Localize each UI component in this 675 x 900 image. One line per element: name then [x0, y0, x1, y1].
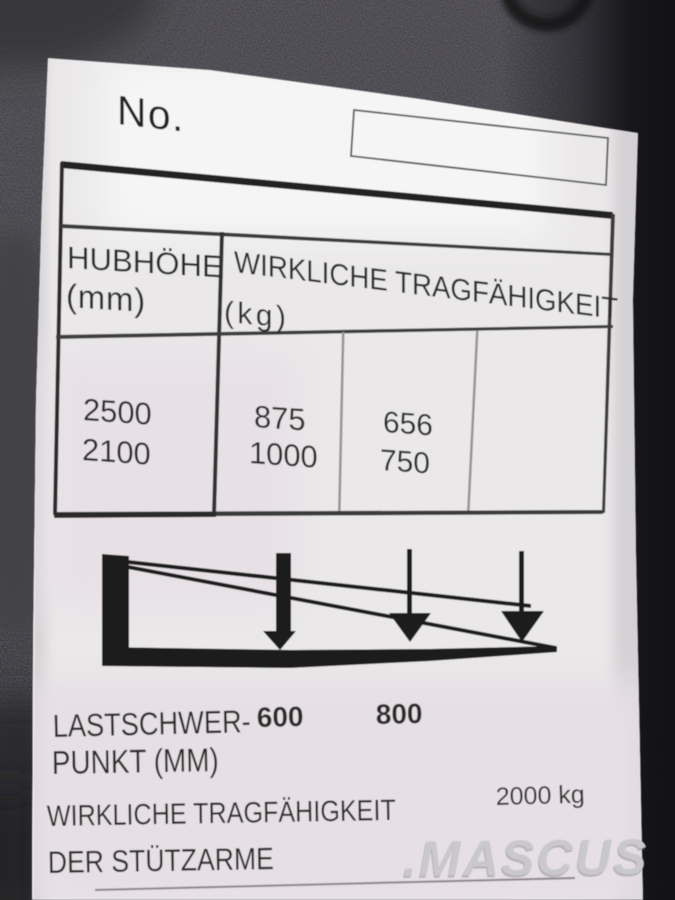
- svg-text:2500: 2500: [83, 392, 152, 432]
- svg-text:800: 800: [375, 698, 422, 730]
- svg-text:656: 656: [383, 406, 433, 443]
- svg-text:LASTSCHWER-: LASTSCHWER-: [52, 703, 251, 744]
- svg-text:1000: 1000: [249, 435, 318, 475]
- svg-text:(mm): (mm): [66, 277, 146, 319]
- svg-text:No.: No.: [117, 87, 185, 141]
- svg-text:2000 kg: 2000 kg: [495, 781, 585, 811]
- svg-text:.MASCUS: .MASCUS: [403, 829, 649, 887]
- svg-text:2100: 2100: [82, 432, 151, 472]
- svg-text:600: 600: [256, 701, 303, 733]
- svg-text:WIRKLICHE TRAGFÄHIGKEIT: WIRKLICHE TRAGFÄHIGKEIT: [47, 794, 397, 833]
- svg-text:DER STÜTZARME: DER STÜTZARME: [48, 841, 275, 880]
- svg-text:875: 875: [254, 399, 306, 438]
- svg-text:(kg): (kg): [224, 296, 289, 335]
- svg-text:PUNKT (MM): PUNKT (MM): [51, 741, 219, 781]
- svg-text:750: 750: [380, 444, 430, 481]
